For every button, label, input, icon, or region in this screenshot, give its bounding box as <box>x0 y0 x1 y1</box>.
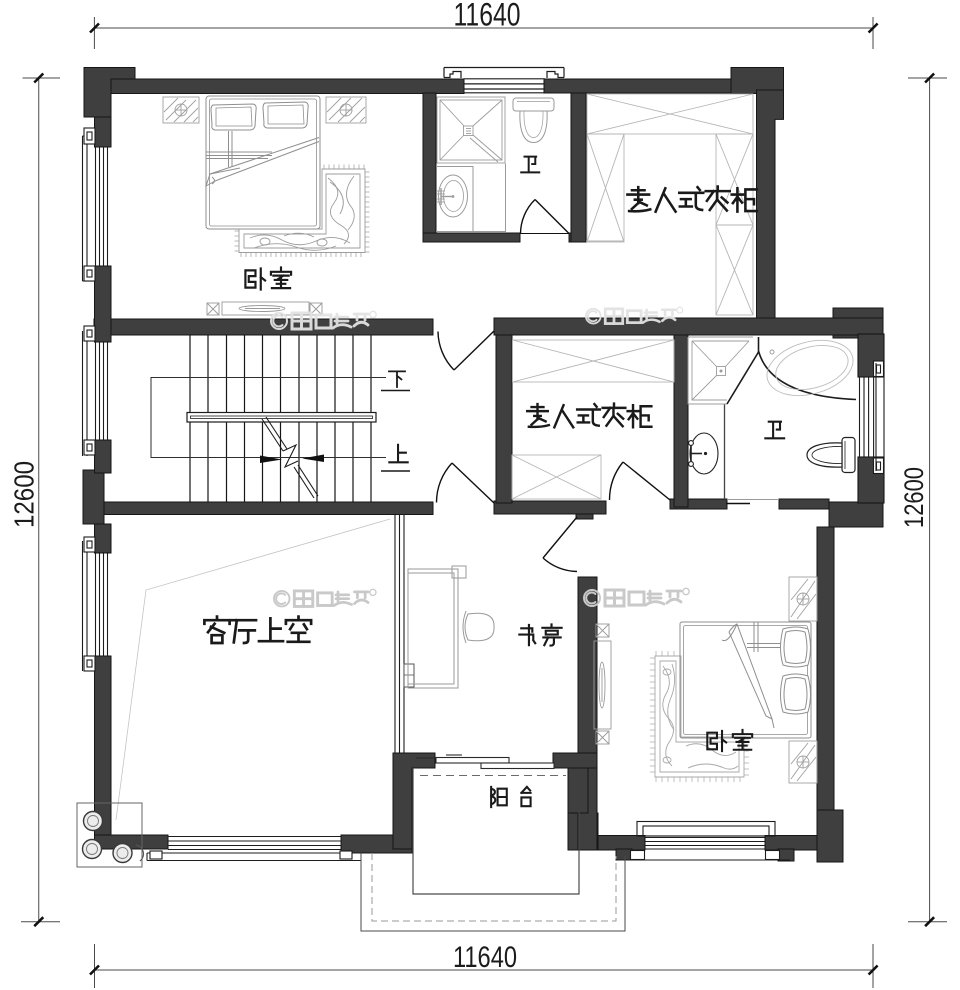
svg-text:11640: 11640 <box>454 0 521 33</box>
svg-text:11640: 11640 <box>453 941 517 974</box>
svg-text:12600: 12600 <box>899 467 929 528</box>
svg-text:12600: 12600 <box>9 461 40 528</box>
